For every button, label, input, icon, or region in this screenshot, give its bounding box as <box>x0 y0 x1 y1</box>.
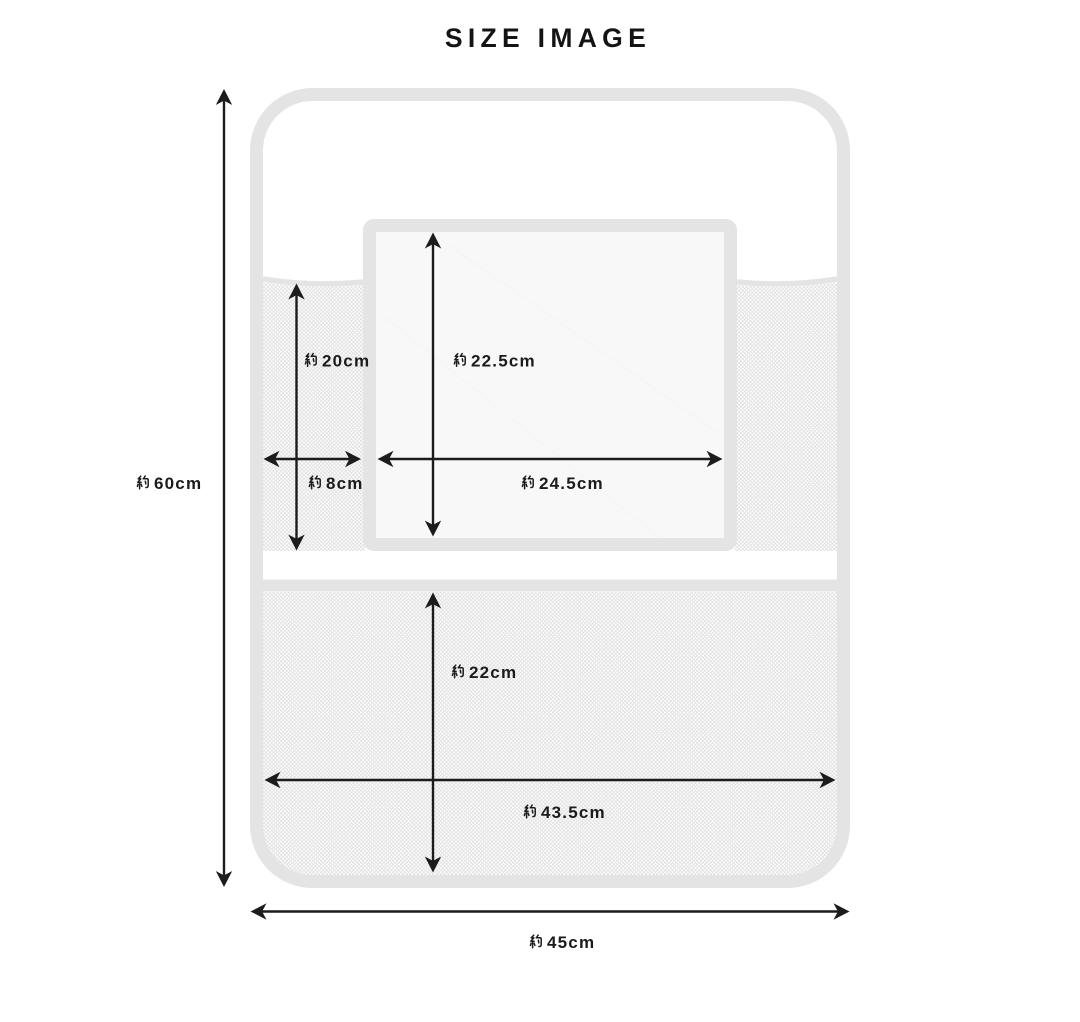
svg-text:SIZE IMAGE: SIZE IMAGE <box>445 23 651 53</box>
svg-text:20cm: 20cm <box>322 352 370 371</box>
svg-text:24.5cm: 24.5cm <box>539 474 604 493</box>
svg-text:22cm: 22cm <box>469 663 517 682</box>
svg-text:43.5cm: 43.5cm <box>541 803 606 822</box>
svg-text:8cm: 8cm <box>326 474 364 493</box>
svg-text:45cm: 45cm <box>547 933 595 952</box>
svg-text:22.5cm: 22.5cm <box>471 352 536 371</box>
svg-text:60cm: 60cm <box>154 474 202 493</box>
